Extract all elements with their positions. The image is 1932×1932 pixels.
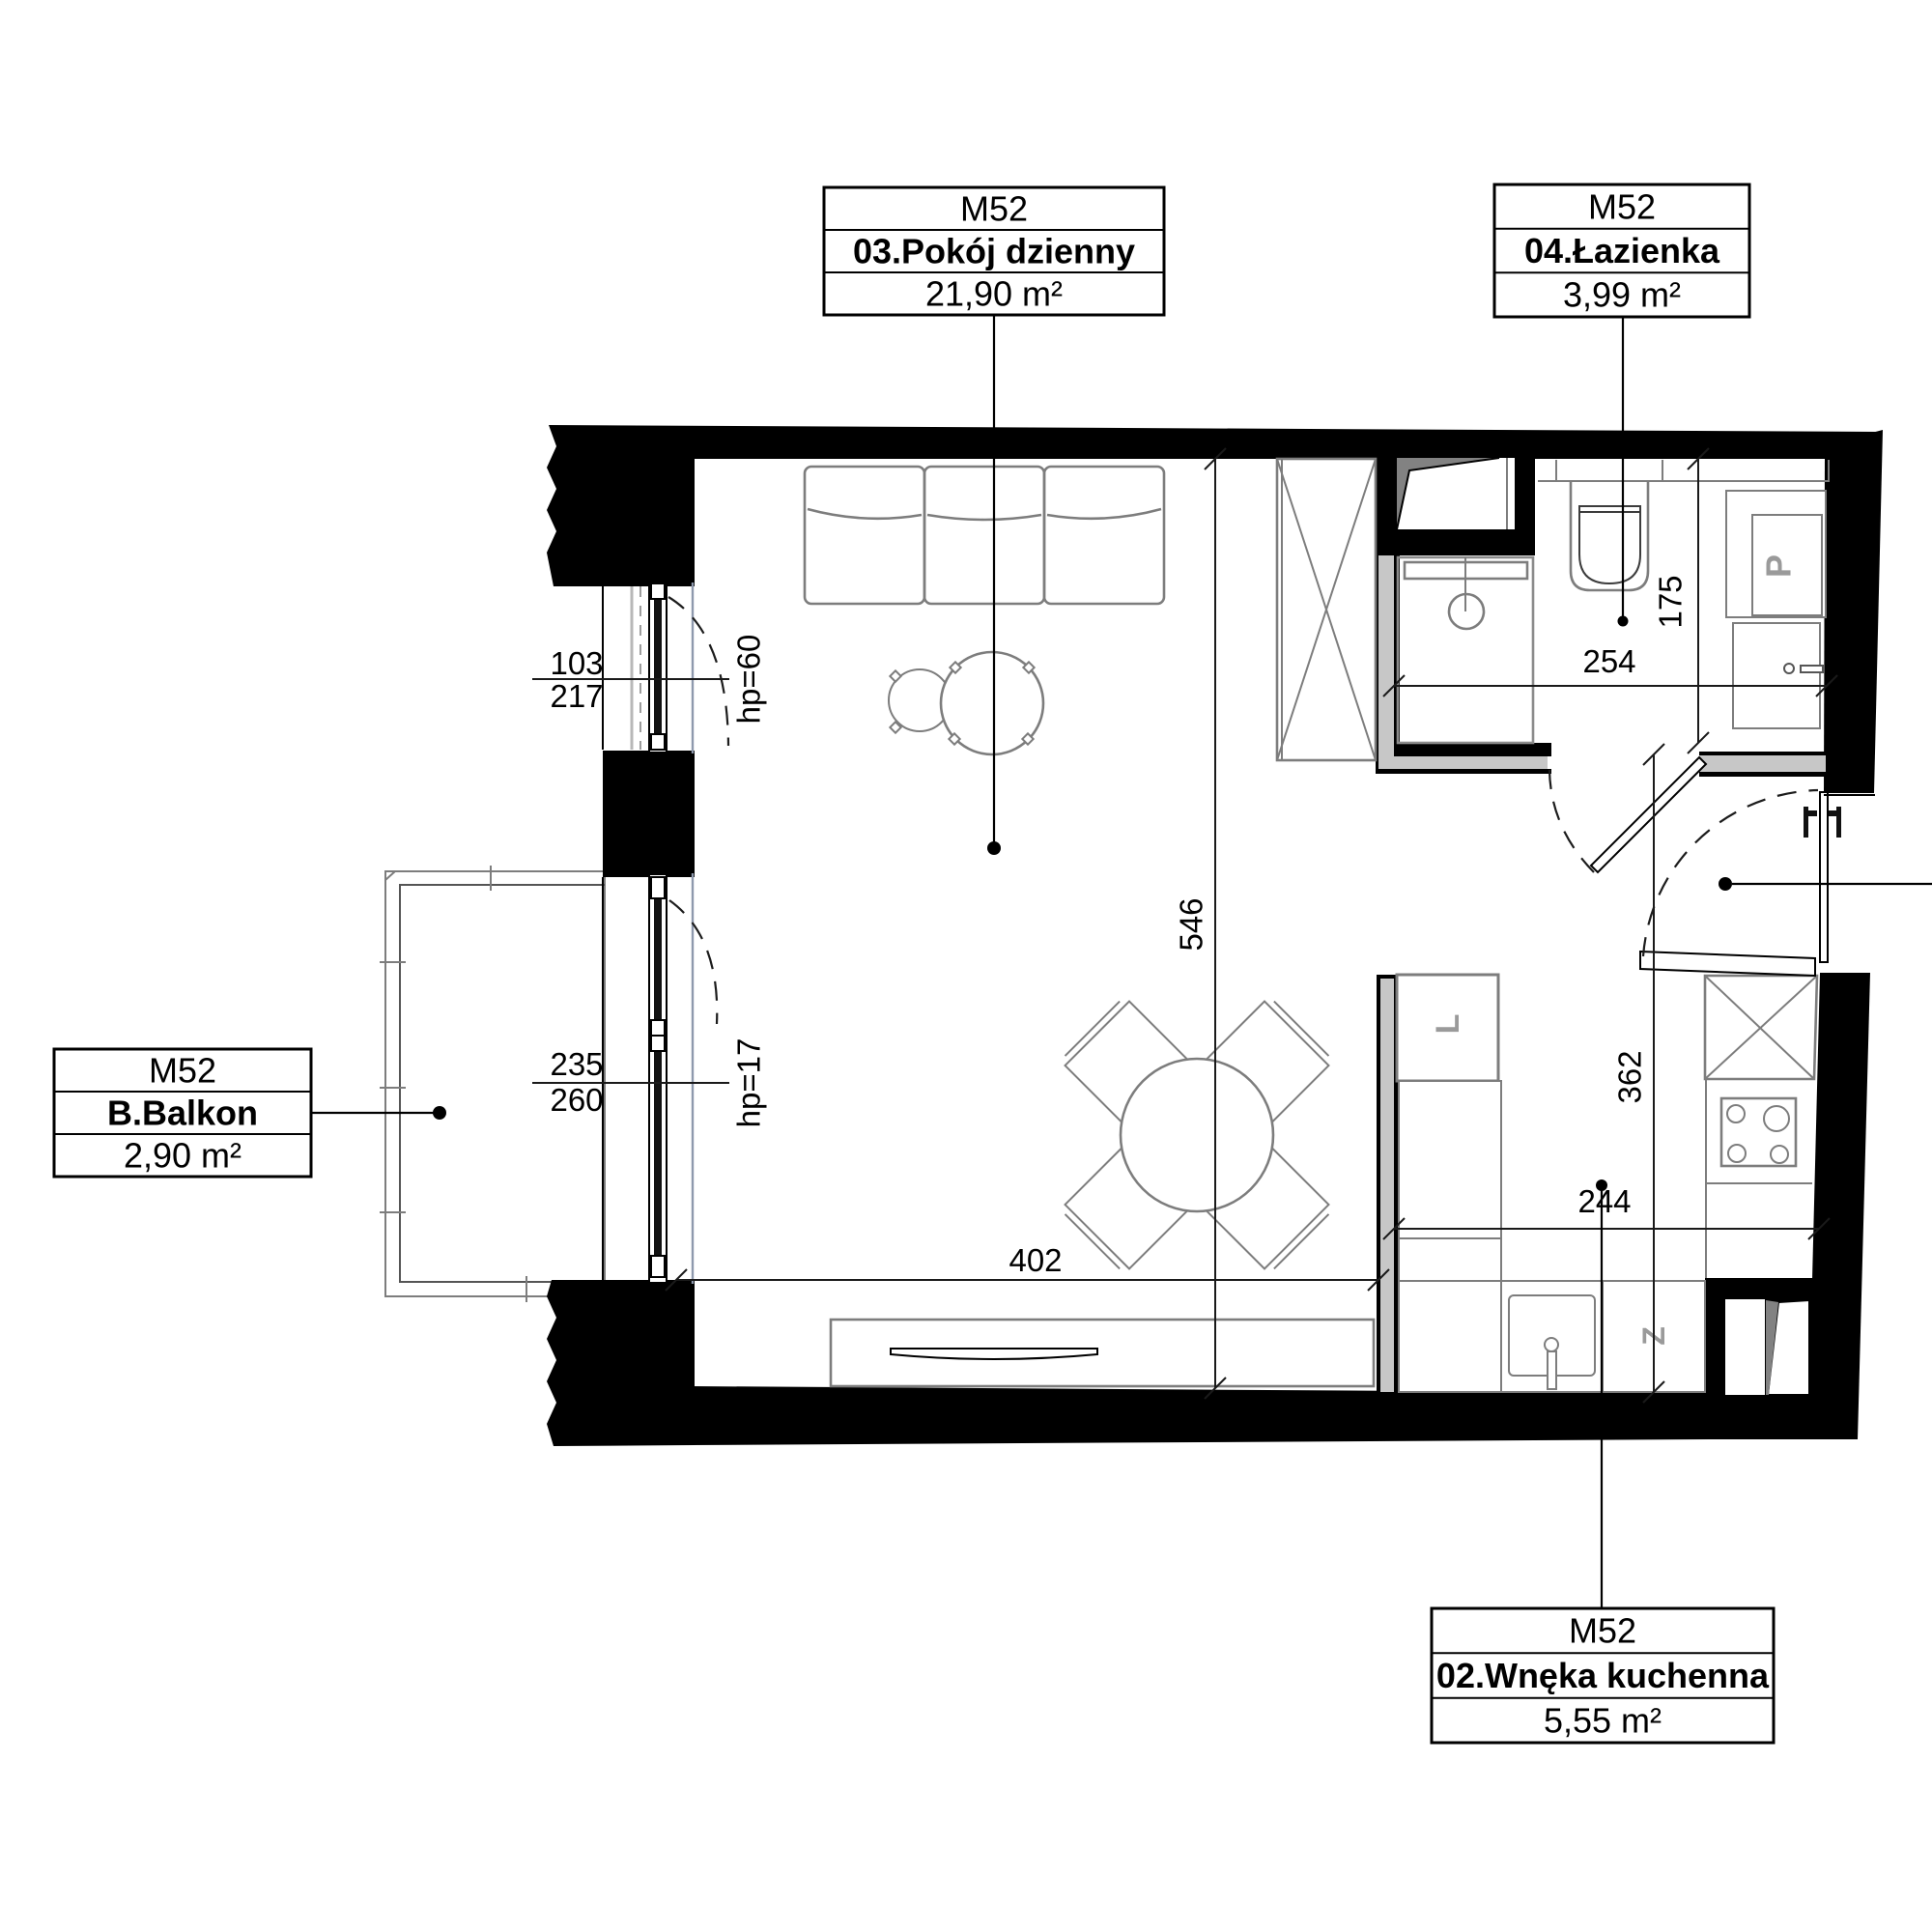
svg-text:362: 362 [1612, 1050, 1648, 1103]
svg-text:260: 260 [550, 1082, 603, 1118]
svg-text:P: P [1759, 554, 1799, 578]
svg-text:21,90 m²: 21,90 m² [925, 274, 1063, 314]
svg-text:02.Wnęka kuchenna: 02.Wnęka kuchenna [1436, 1656, 1770, 1695]
svg-text:L: L [1430, 1014, 1466, 1035]
svg-text:103: 103 [550, 645, 603, 681]
svg-text:M52: M52 [149, 1051, 216, 1091]
svg-text:04.Łazienka: 04.Łazienka [1524, 231, 1720, 270]
svg-text:hp=17: hp=17 [731, 1038, 767, 1128]
svg-text:2,90 m²: 2,90 m² [124, 1136, 241, 1176]
svg-text:M52: M52 [1569, 1611, 1636, 1651]
svg-text:254: 254 [1582, 643, 1635, 679]
svg-text:546: 546 [1174, 897, 1209, 951]
svg-text:M52: M52 [1588, 186, 1656, 226]
svg-text:hp=60: hp=60 [731, 635, 767, 724]
svg-text:175: 175 [1653, 575, 1689, 628]
svg-text:M52: M52 [960, 189, 1028, 229]
svg-text:5,55 m²: 5,55 m² [1544, 1700, 1662, 1740]
svg-text:B.Balkon: B.Balkon [107, 1094, 258, 1133]
svg-text:402: 402 [1009, 1242, 1062, 1278]
svg-text:235: 235 [550, 1046, 603, 1082]
svg-text:217: 217 [550, 678, 603, 714]
svg-text:03.Pokój dzienny: 03.Pokój dzienny [853, 232, 1135, 271]
svg-text:3,99 m²: 3,99 m² [1563, 275, 1681, 315]
